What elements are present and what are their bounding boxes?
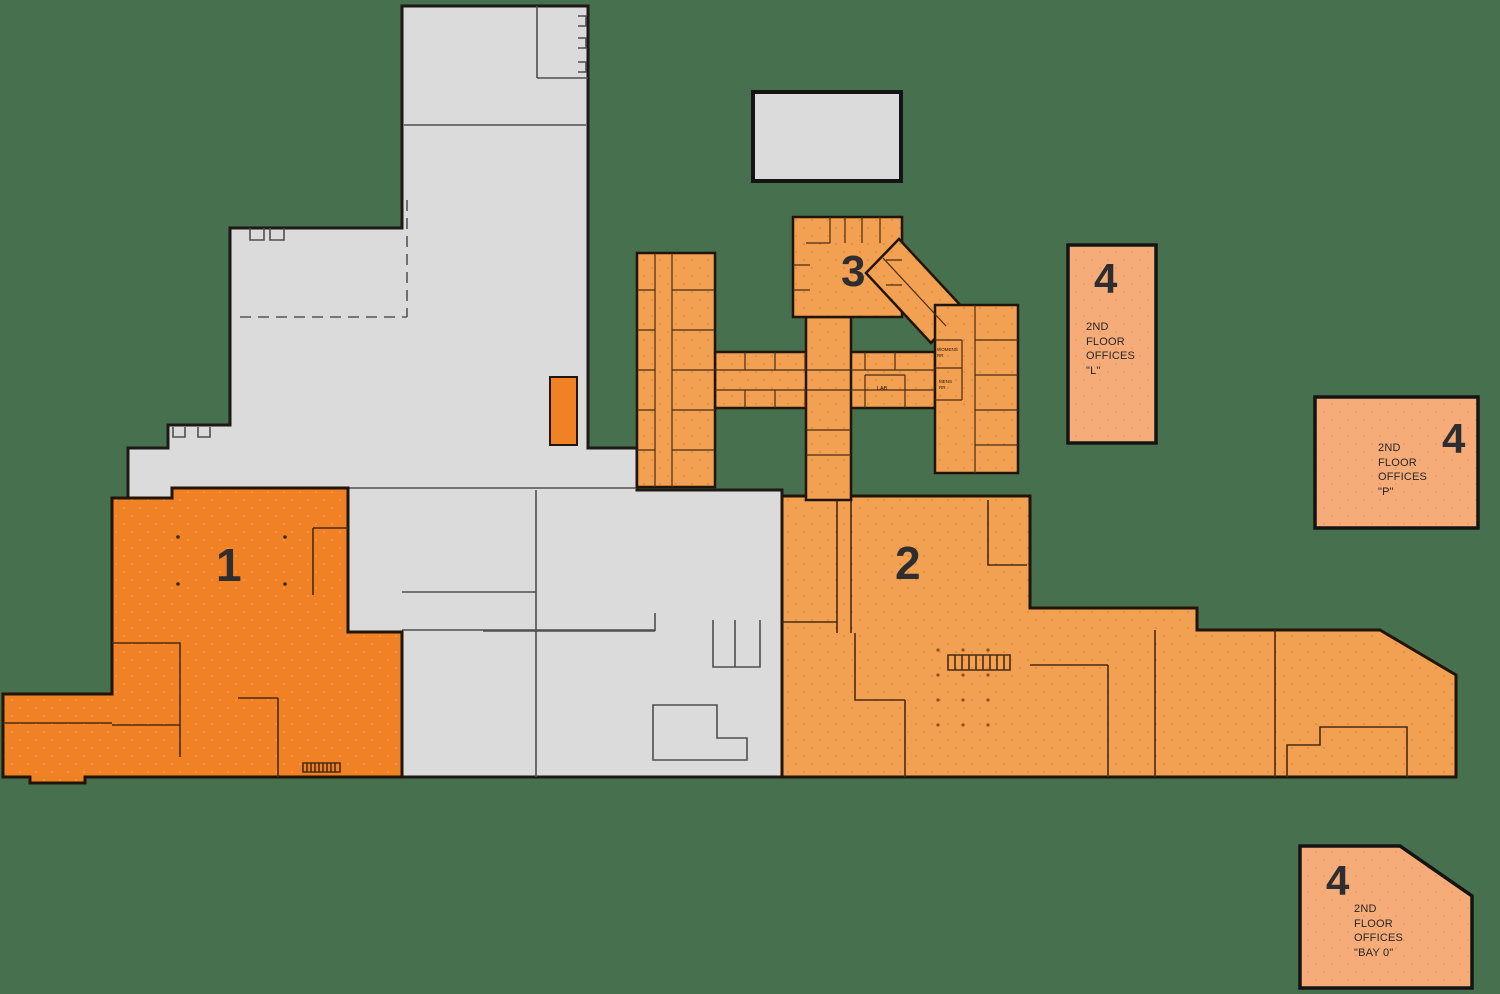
detached-gray-structure — [753, 92, 901, 181]
zone-1-area[interactable] — [3, 488, 402, 783]
office-bay0-number: 4 — [1326, 860, 1349, 902]
zone-3[interactable] — [637, 217, 1018, 500]
zone-1-label: 1 — [216, 542, 242, 588]
mens-rr-label: MENS RR — [939, 379, 952, 390]
lab-label: LAB — [877, 386, 887, 393]
floor-plan-svg — [0, 0, 1500, 994]
orange-insert-room — [550, 377, 577, 445]
office-bay0-text: 2ND FLOOR OFFICES "BAY 0" — [1354, 902, 1434, 960]
office-l-text: 2ND FLOOR OFFICES "L" — [1086, 320, 1150, 378]
zone-1[interactable] — [3, 488, 402, 783]
zone-2-area[interactable] — [782, 496, 1456, 777]
floor-plan-canvas: 1 2 3 4 2ND FLOOR OFFICES "L" 4 2ND FLOO… — [0, 0, 1500, 994]
zone-3-label: 3 — [841, 250, 865, 294]
office-p-text: 2ND FLOOR OFFICES "P" — [1378, 441, 1450, 499]
office-l-number: 4 — [1094, 258, 1117, 300]
zone-3-center-block[interactable] — [806, 317, 851, 500]
zone-2-label: 2 — [895, 540, 921, 586]
zone-2[interactable] — [782, 496, 1456, 777]
womens-rr-label: WOMENS RR — [937, 347, 958, 358]
